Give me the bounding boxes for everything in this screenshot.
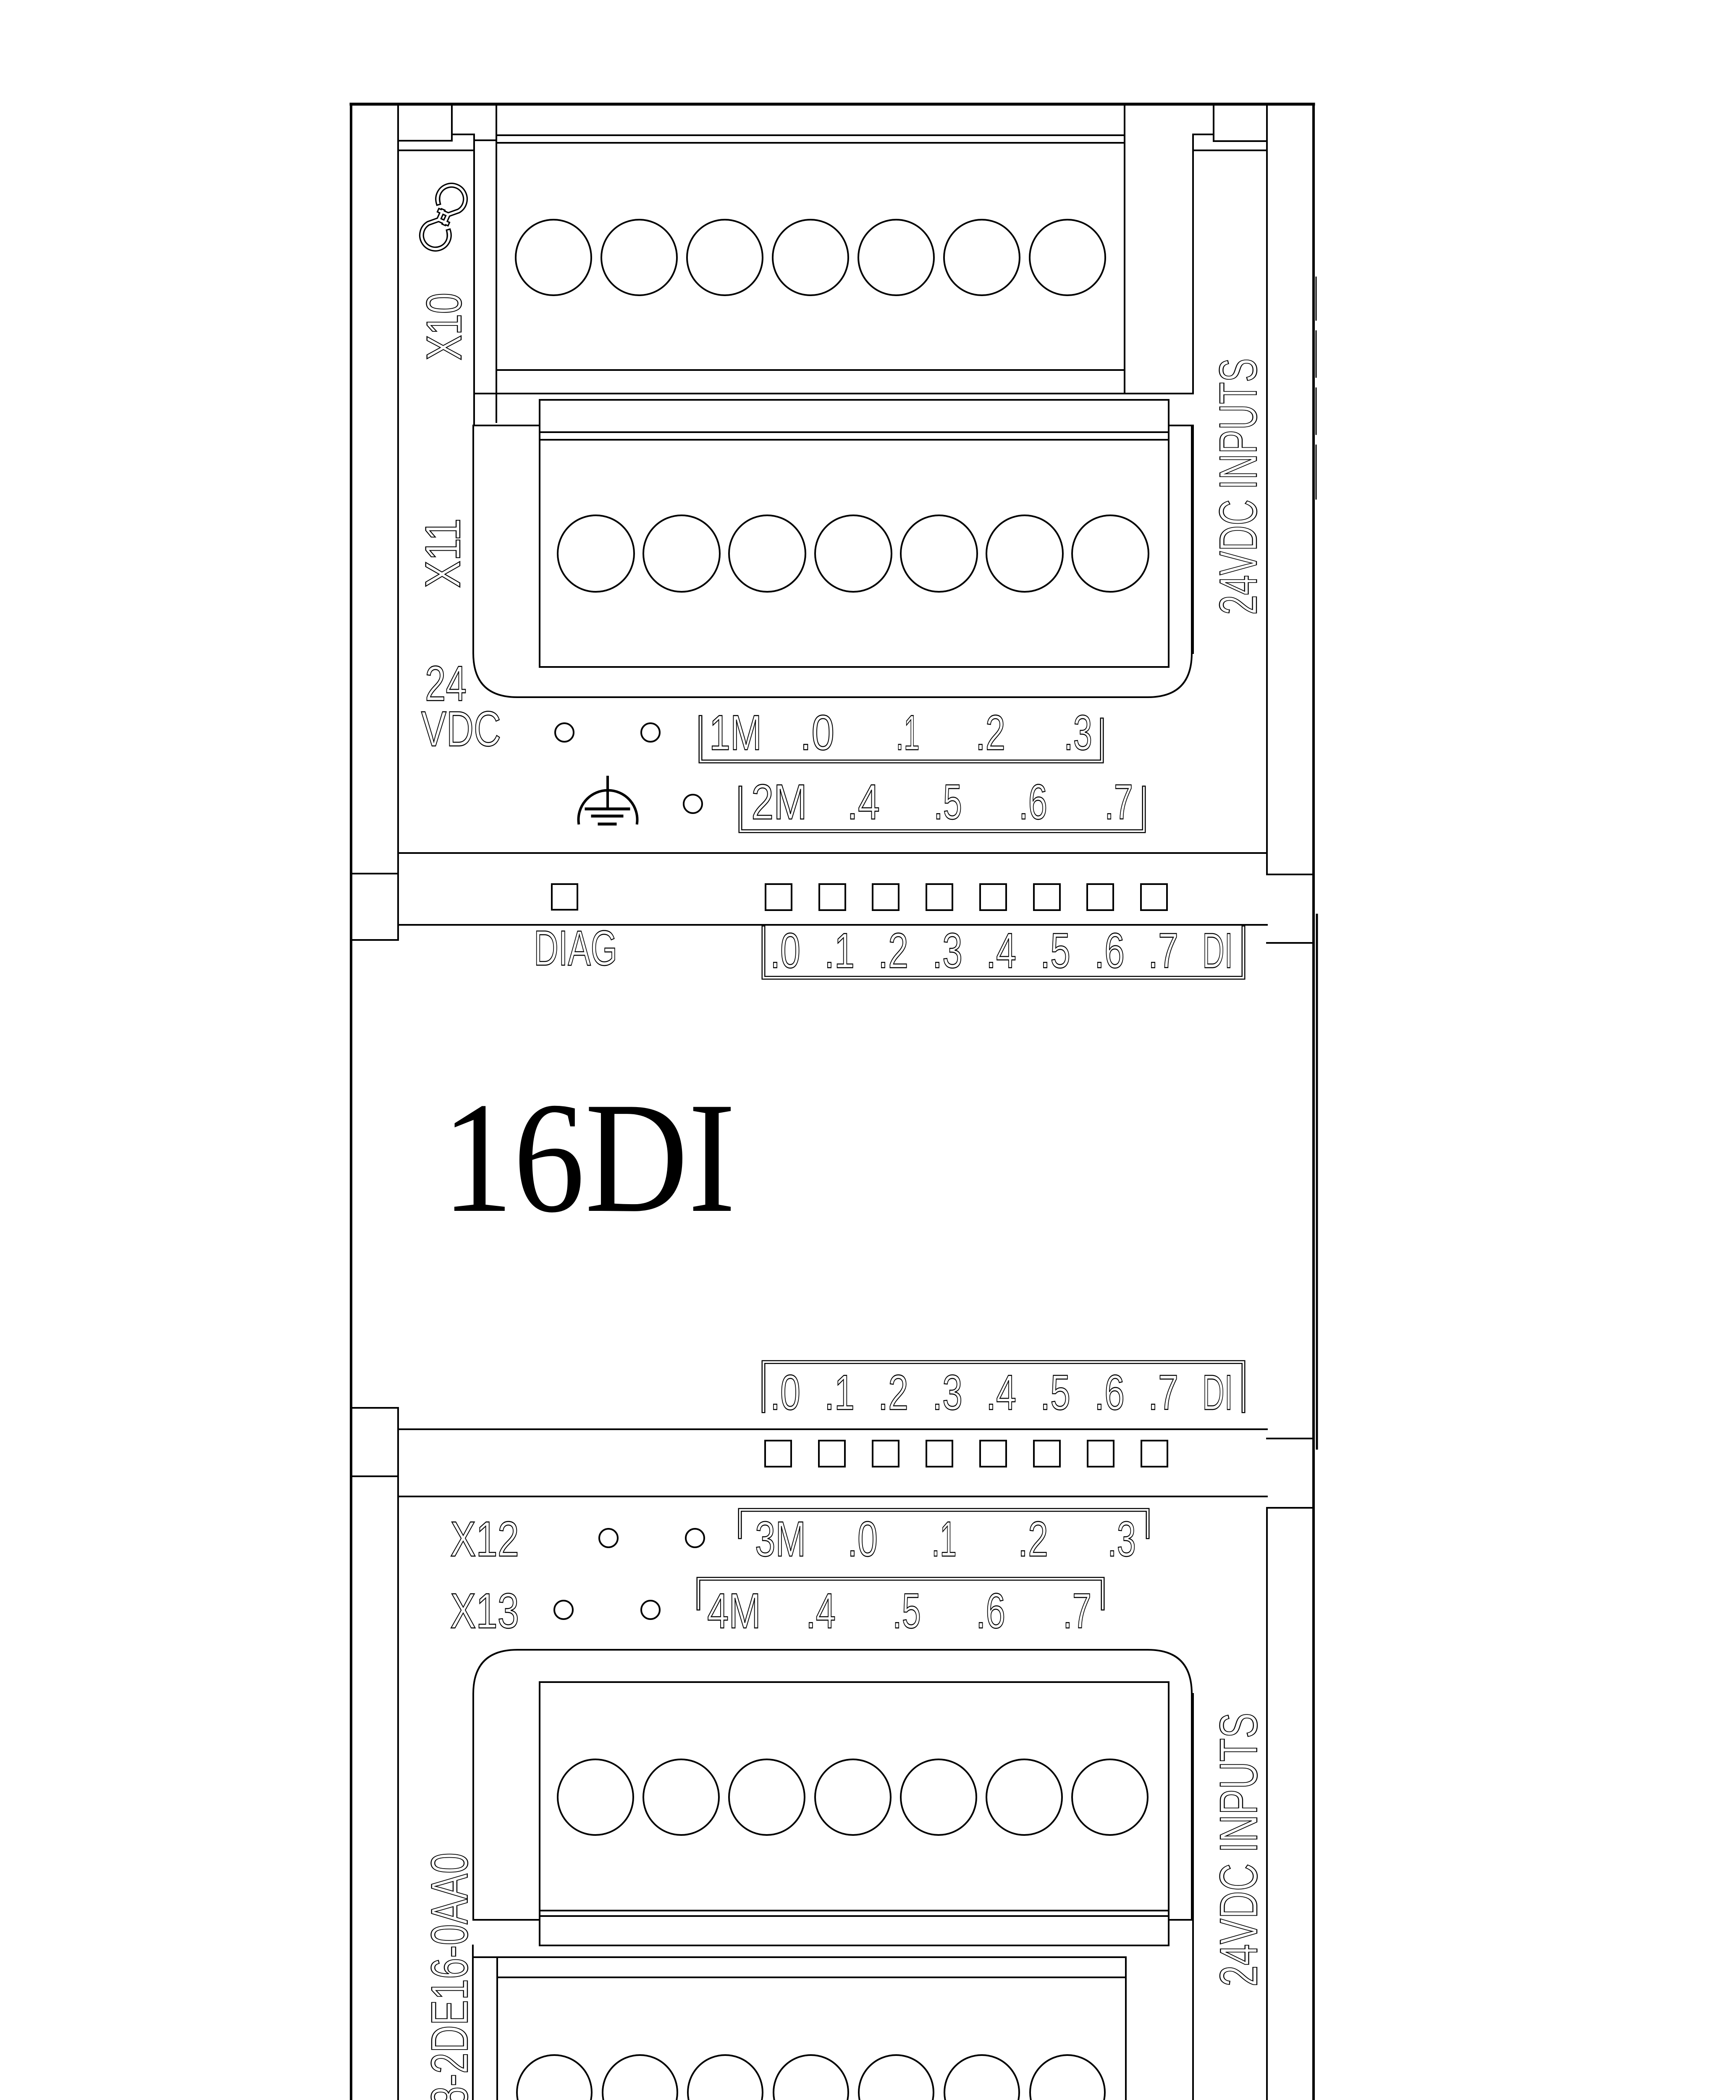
svg-text:.5: .5	[1040, 1365, 1070, 1420]
svg-text:.2: .2	[878, 1365, 908, 1420]
svg-text:X11: X11	[415, 518, 471, 588]
svg-text:.0: .0	[847, 1512, 878, 1567]
svg-text:.3: .3	[932, 923, 962, 979]
svg-text:.7: .7	[1104, 774, 1133, 830]
svg-text:3M: 3M	[755, 1512, 806, 1567]
svg-text:X13: X13	[450, 1583, 519, 1639]
svg-text:X12: X12	[450, 1512, 519, 1567]
svg-text:.7: .7	[1148, 923, 1178, 979]
svg-text:.0: .0	[800, 705, 834, 761]
svg-text:.7: .7	[1063, 1583, 1091, 1639]
svg-text:.1: .1	[824, 1365, 855, 1420]
svg-text:.2: .2	[976, 705, 1005, 761]
svg-text:DIAG: DIAG	[534, 921, 617, 976]
svg-text:.6: .6	[976, 1583, 1005, 1639]
svg-text:.3: .3	[1107, 1512, 1136, 1567]
svg-text:1M: 1M	[709, 705, 762, 761]
svg-text:.0: .0	[770, 1365, 800, 1420]
svg-text:16DI: 16DI	[442, 1069, 736, 1245]
svg-text:.5: .5	[1040, 923, 1070, 979]
svg-text:VDC: VDC	[421, 701, 501, 757]
svg-text:.1: .1	[824, 923, 855, 979]
svg-text:DI: DI	[1202, 1365, 1233, 1420]
svg-text:.4: .4	[986, 923, 1016, 979]
svg-text:.0: .0	[770, 923, 800, 979]
svg-text:.6: .6	[1094, 1365, 1125, 1420]
svg-text:.5: .5	[892, 1583, 921, 1639]
svg-text:.4: .4	[806, 1583, 836, 1639]
svg-text:.2: .2	[1018, 1512, 1048, 1567]
svg-text:288-2DE16-0AA0: 288-2DE16-0AA0	[421, 1853, 479, 2100]
svg-text:.5: .5	[934, 774, 962, 830]
svg-text:.7: .7	[1148, 1365, 1178, 1420]
svg-text:4M: 4M	[707, 1583, 761, 1639]
svg-text:.6: .6	[1019, 774, 1047, 830]
svg-text:24VDC INPUTS: 24VDC INPUTS	[1209, 358, 1268, 615]
svg-text:.2: .2	[878, 923, 908, 979]
svg-text:.4: .4	[847, 774, 880, 830]
svg-text:.3: .3	[932, 1365, 962, 1420]
svg-text:.6: .6	[1094, 923, 1125, 979]
svg-text:DI: DI	[1202, 923, 1233, 979]
svg-text:X10: X10	[417, 293, 472, 360]
svg-text:.1: .1	[896, 705, 920, 761]
svg-text:.1: .1	[931, 1512, 957, 1567]
svg-text:.3: .3	[1064, 705, 1092, 761]
svg-text:24VDC INPUTS: 24VDC INPUTS	[1209, 1713, 1268, 1987]
svg-text:2M: 2M	[751, 774, 807, 830]
svg-text:.4: .4	[986, 1365, 1016, 1420]
